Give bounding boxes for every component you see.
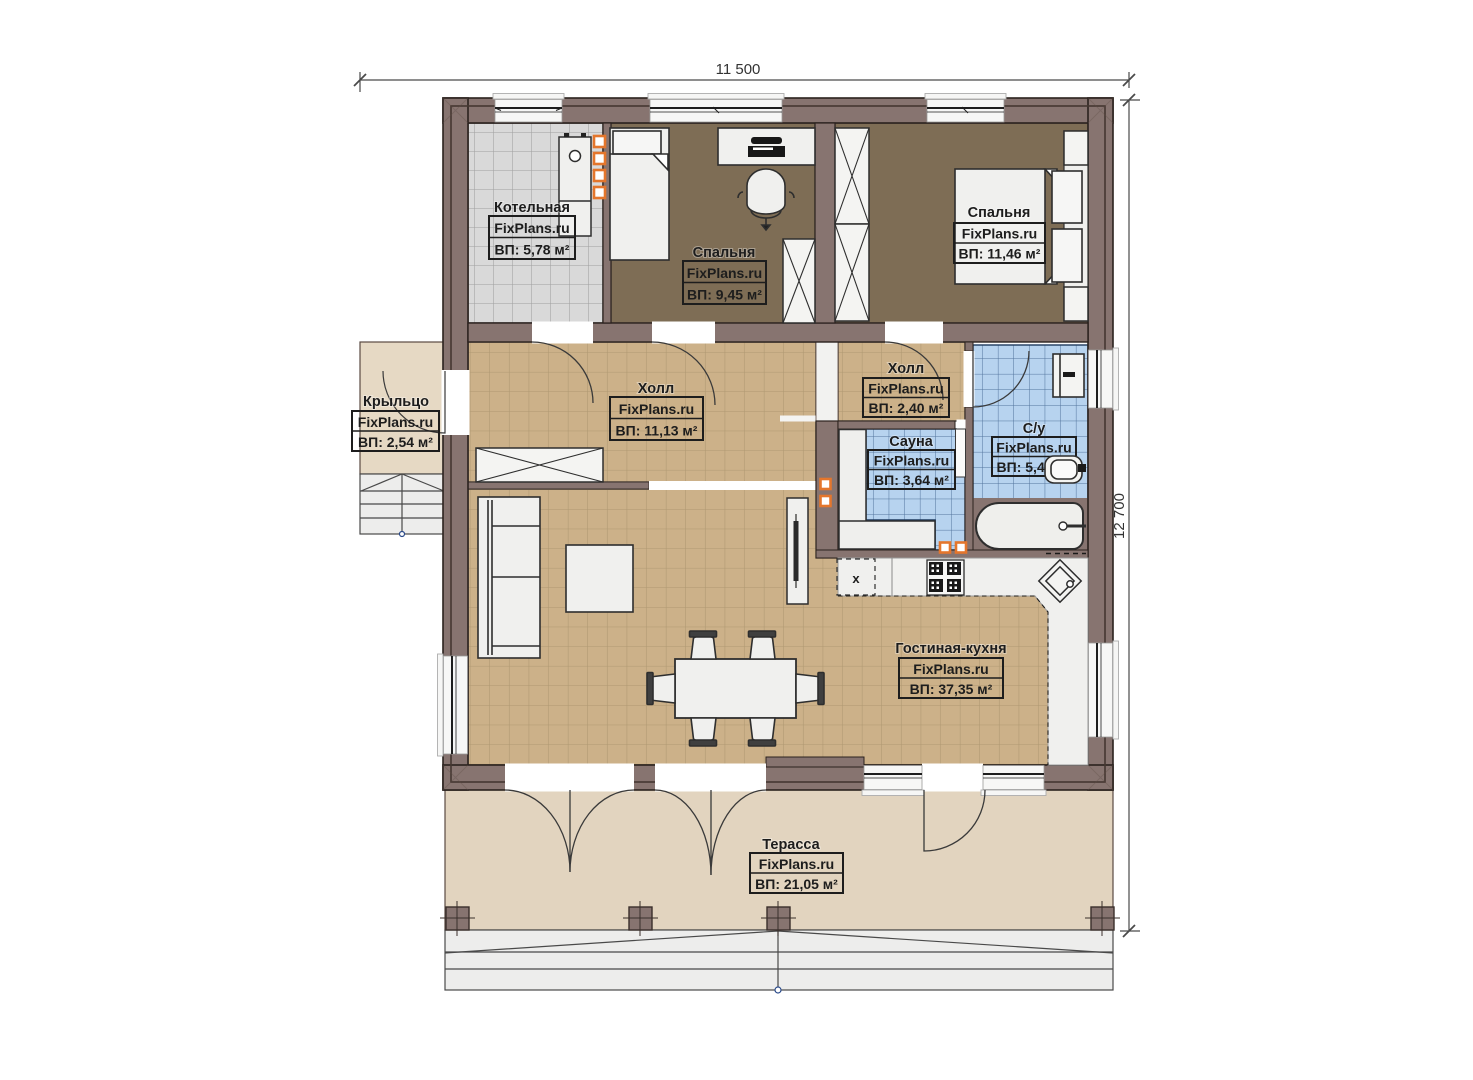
svg-text:Крыльцо: Крыльцо xyxy=(363,394,429,410)
svg-text:FixPlans.ru: FixPlans.ru xyxy=(913,661,988,677)
svg-text:ВП: 2,54 м²: ВП: 2,54 м² xyxy=(358,434,433,450)
svg-text:Гостиная-кухня: Гостиная-кухня xyxy=(895,641,1006,657)
svg-text:12 700: 12 700 xyxy=(1111,493,1128,539)
svg-text:x: x xyxy=(852,571,860,586)
svg-text:FixPlans.ru: FixPlans.ru xyxy=(868,381,943,397)
svg-text:Спальня: Спальня xyxy=(968,205,1031,221)
svg-text:FixPlans.ru: FixPlans.ru xyxy=(619,401,694,417)
svg-text:ВП: 9,45 м²: ВП: 9,45 м² xyxy=(687,287,762,303)
svg-text:ВП: 3,64 м²: ВП: 3,64 м² xyxy=(874,472,949,488)
svg-text:ВП: 5,78 м²: ВП: 5,78 м² xyxy=(495,242,570,258)
svg-text:ВП: 21,05 м²: ВП: 21,05 м² xyxy=(755,876,838,892)
svg-text:ВП: 11,13 м²: ВП: 11,13 м² xyxy=(616,423,698,439)
svg-text:11 500: 11 500 xyxy=(716,61,761,78)
svg-text:Спальня: Спальня xyxy=(693,245,756,261)
svg-text:С/у: С/у xyxy=(1023,421,1046,437)
svg-text:Терасса: Терасса xyxy=(762,837,820,853)
svg-text:Холл: Холл xyxy=(638,381,674,397)
svg-text:FixPlans.ru: FixPlans.ru xyxy=(494,220,569,236)
svg-text:FixPlans.ru: FixPlans.ru xyxy=(358,414,433,430)
svg-text:Сауна: Сауна xyxy=(889,434,934,450)
svg-text:Котельная: Котельная xyxy=(494,200,570,216)
svg-text:FixPlans.ru: FixPlans.ru xyxy=(962,226,1037,242)
svg-text:FixPlans.ru: FixPlans.ru xyxy=(687,265,762,281)
svg-text:FixPlans.ru: FixPlans.ru xyxy=(874,453,949,469)
svg-text:FixPlans.ru: FixPlans.ru xyxy=(996,440,1071,456)
svg-text:ВП: 37,35 м²: ВП: 37,35 м² xyxy=(910,681,993,697)
svg-text:ВП: 2,40 м²: ВП: 2,40 м² xyxy=(869,400,944,416)
svg-text:ВП: 11,46 м²: ВП: 11,46 м² xyxy=(959,246,1041,262)
svg-text:FixPlans.ru: FixPlans.ru xyxy=(759,856,834,872)
svg-text:Холл: Холл xyxy=(888,361,924,377)
